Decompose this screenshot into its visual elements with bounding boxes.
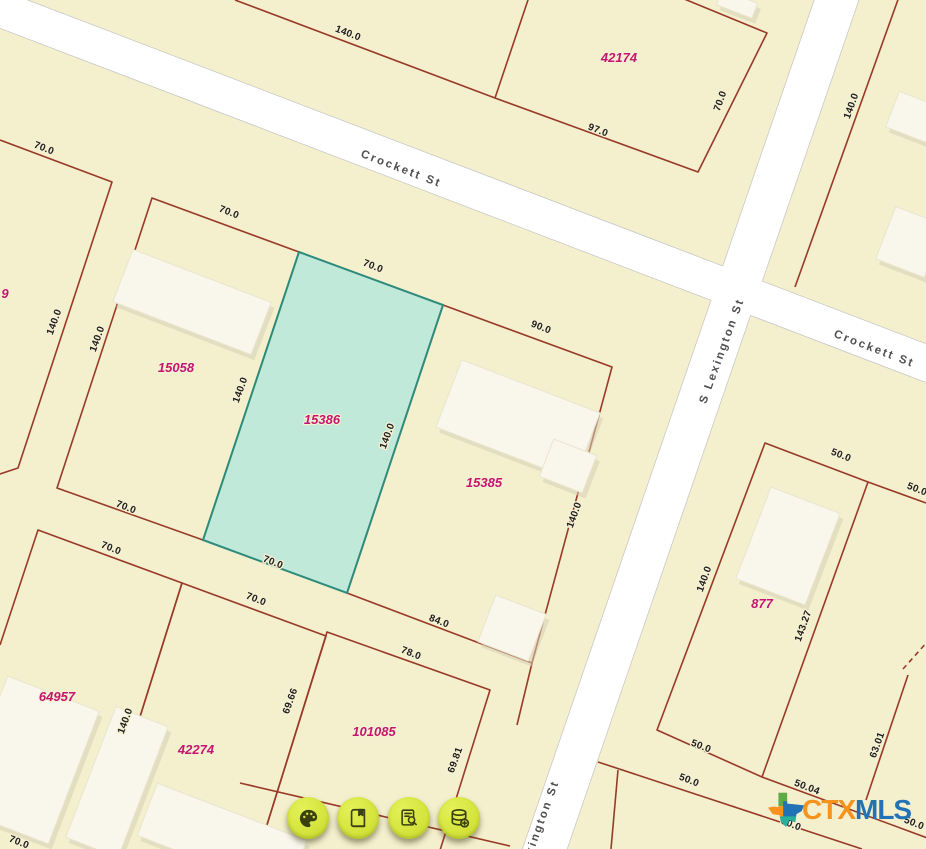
database-plus-icon [448,807,471,830]
parcel-map: Crockett StCrockett StS Lexington StS Le… [0,0,926,849]
parcel-id-label-15058: 15058 [158,360,195,375]
parcel-id-label-101085: 101085 [352,724,396,739]
texas-icon [767,792,805,828]
parcel-map-viewer: Crockett StCrockett StS Lexington StS Le… [0,0,926,849]
book-bookmark-icon [347,807,369,829]
logo-mls-text: MLS [855,796,911,824]
report-search-button[interactable] [388,797,430,839]
parcel-id-label-877: 877 [751,596,773,611]
palette-icon [297,807,320,830]
database-add-button[interactable] [438,797,480,839]
parcel-id-label-15386: 15386 [304,412,341,427]
palette-button[interactable] [287,797,329,839]
parcel-id-label-42174: 42174 [600,50,638,65]
parcel-id-label-15385: 15385 [466,475,503,490]
ctxmls-logo: CTXMLS [767,792,911,828]
parcel-id-label-64957: 64957 [39,689,76,704]
texas-shape [767,792,804,828]
logo-ctx-text: CTX [802,796,855,824]
document-search-icon [398,807,420,829]
parcel-id-label-42274: 42274 [177,742,215,757]
bookmark-book-button[interactable] [337,797,379,839]
parcel-id-label-9: 9 [1,286,9,301]
